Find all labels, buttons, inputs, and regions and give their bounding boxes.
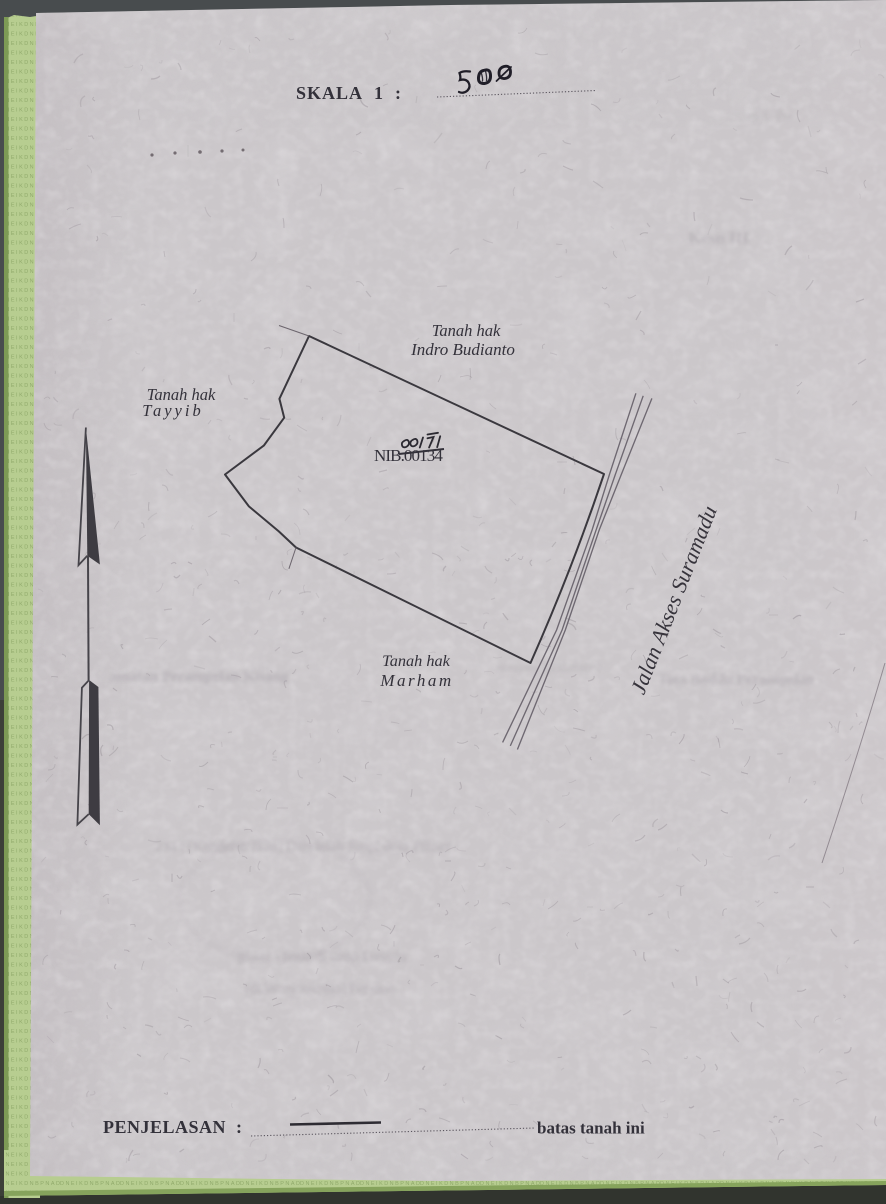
svg-text:amatan Perampelan Kisang: amatan Perampelan Kisang bbox=[110, 669, 289, 685]
svg-text:Marham: Marham bbox=[379, 671, 453, 690]
svg-text:SKALA 1 :: SKALA 1 : bbox=[296, 83, 402, 103]
svg-text:batas tanah ini: batas tanah ini bbox=[537, 1119, 645, 1138]
svg-text:NIB.00134: NIB.00134 bbox=[374, 446, 443, 465]
svg-text:Tayyib: Tayyib bbox=[142, 401, 203, 420]
svg-text:Tanah hak: Tanah hak bbox=[432, 321, 501, 340]
svg-text:234 : (Kendelan Ikan) Dari lel: 234 : (Kendelan Ikan) Dari lelah Jimpi d… bbox=[155, 839, 452, 855]
svg-text:Tota Bodihi Perampelan: Tota Bodihi Perampelan bbox=[658, 672, 815, 688]
svg-text:Tanah hak: Tanah hak bbox=[382, 651, 450, 670]
svg-text:plater - bnda di tamp krevolu: plater - bnda di tamp krevolu bbox=[238, 949, 407, 965]
svg-text:(di Wrny serrmo) Perahan: (di Wrny serrmo) Perahan bbox=[245, 981, 397, 997]
svg-text:PENJELASAN :: PENJELASAN : bbox=[103, 1117, 243, 1137]
svg-text:os 1. Po: os 1. Po bbox=[746, 109, 791, 124]
svg-text:Kesn III: Kesn III bbox=[688, 228, 749, 247]
svg-text:Indro Budianto: Indro Budianto bbox=[410, 340, 515, 359]
